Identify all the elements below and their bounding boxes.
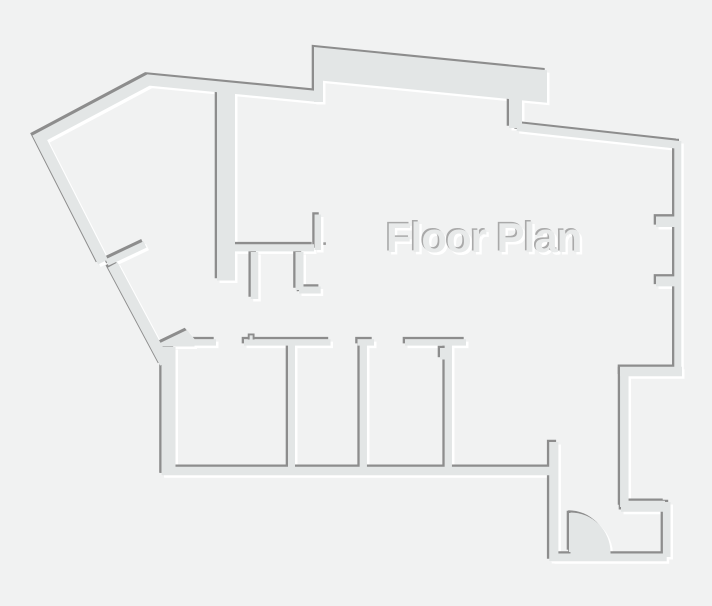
svg-text:Floor Plan: Floor Plan [386, 214, 581, 261]
